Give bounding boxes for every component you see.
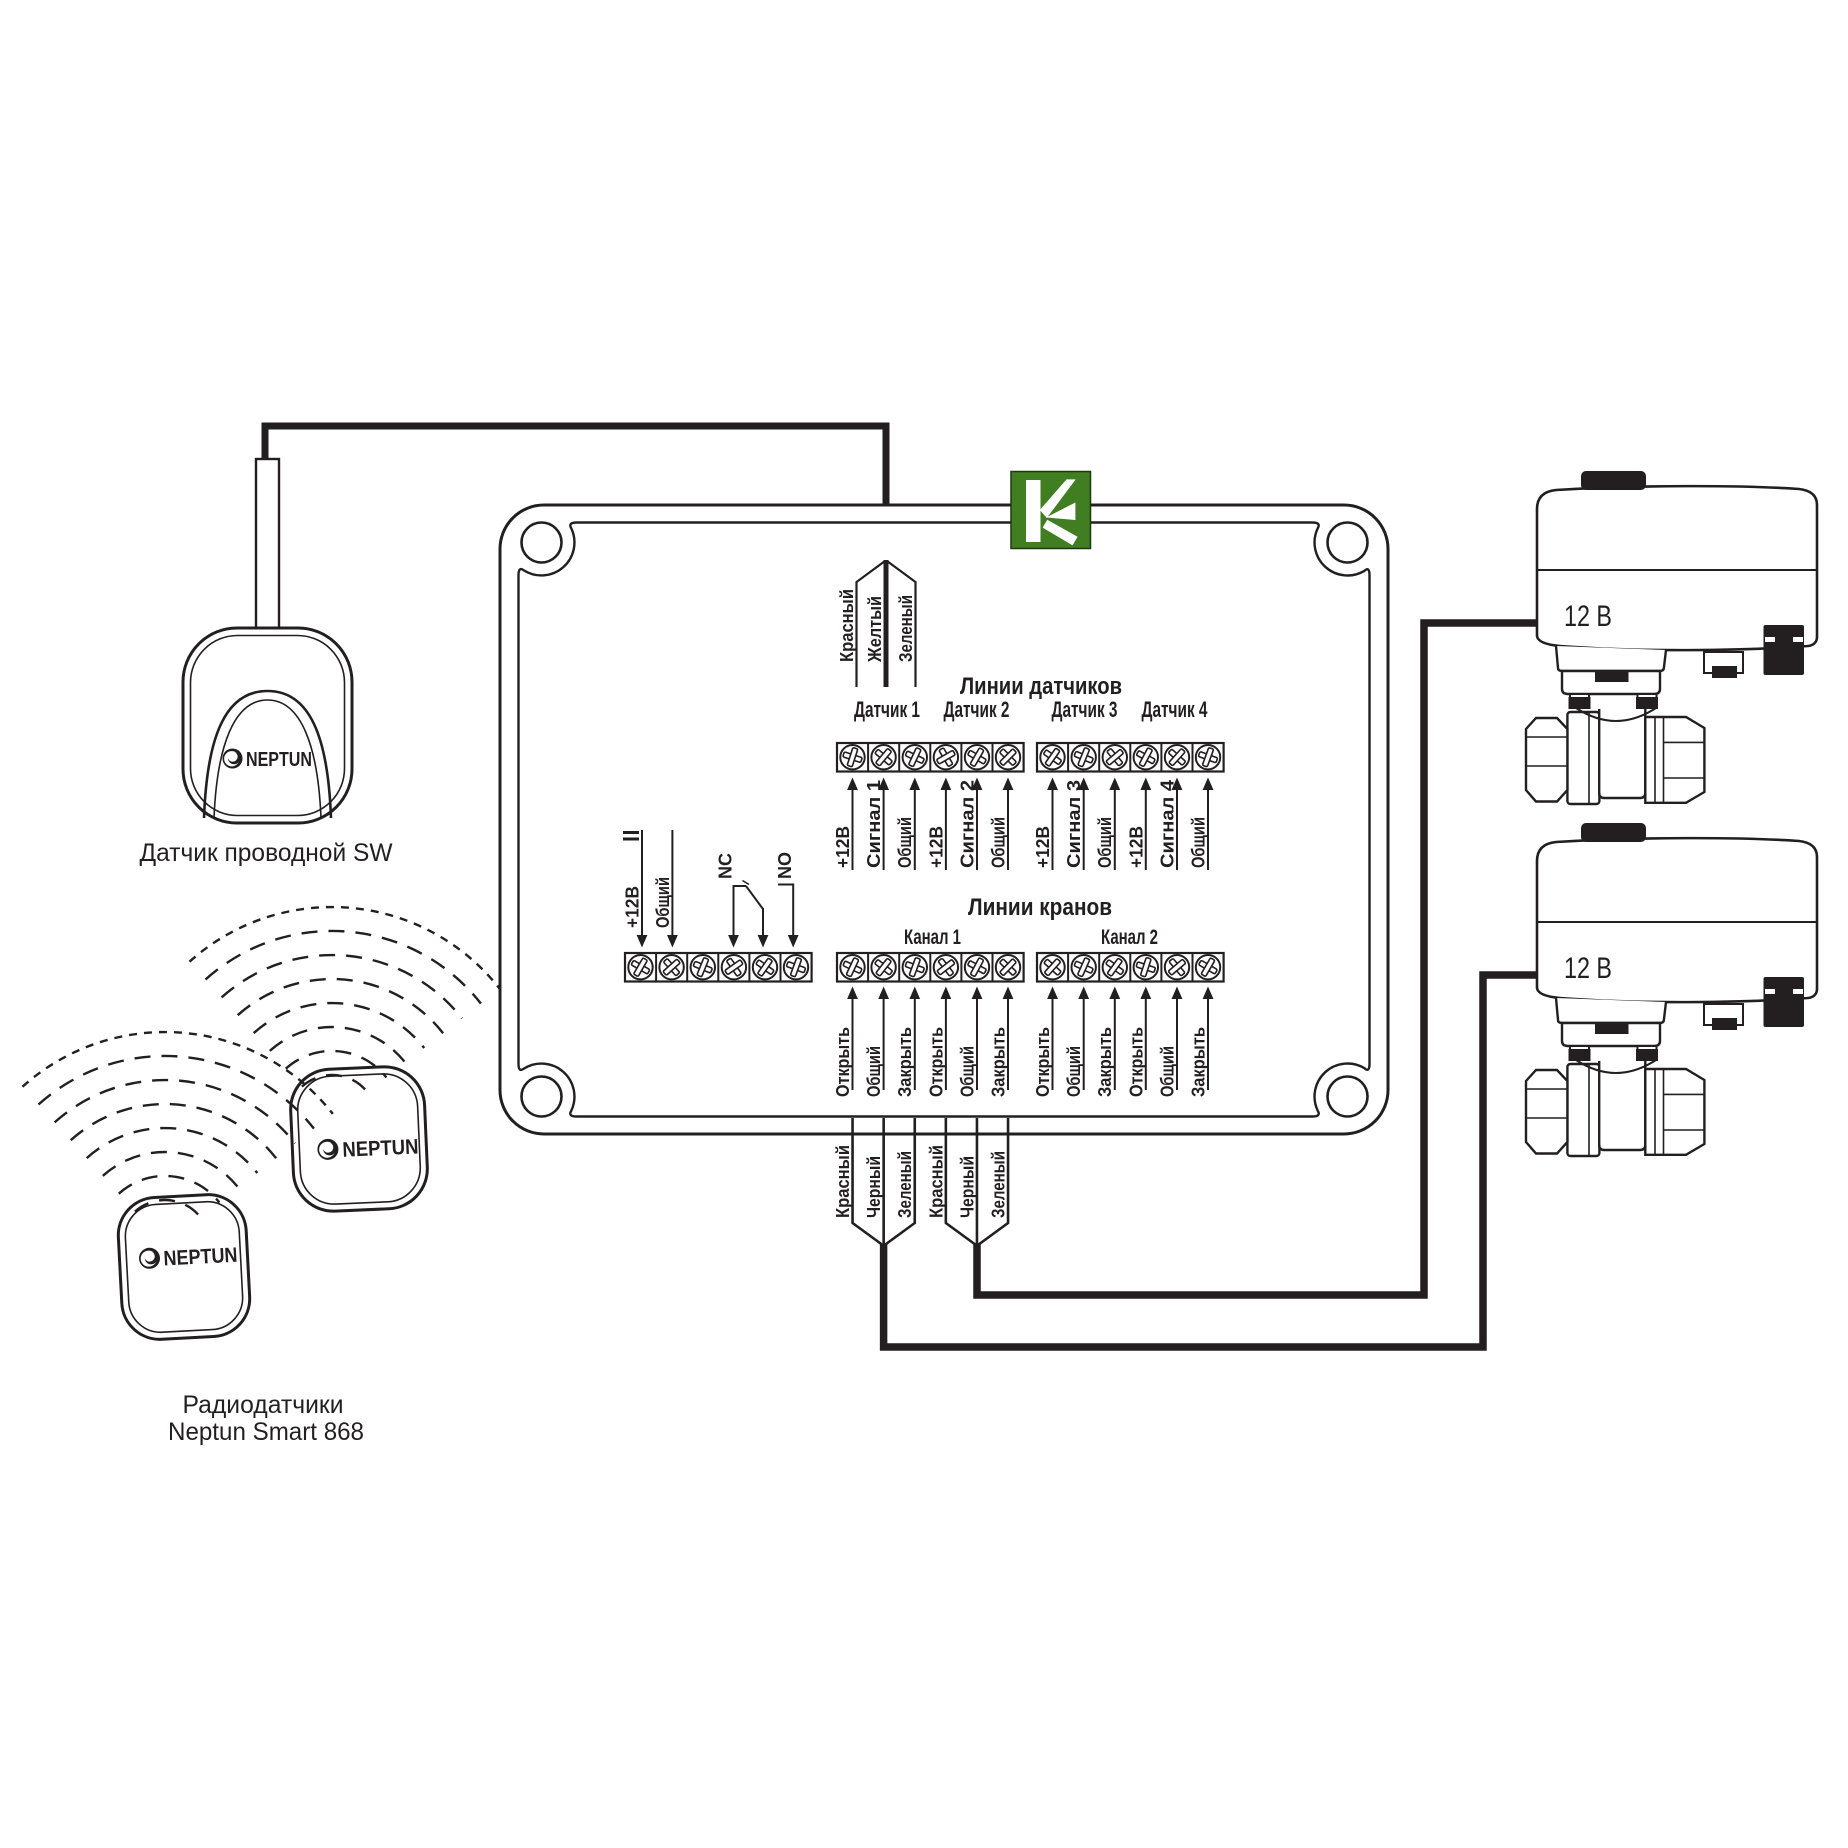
svg-text:Общий: Общий	[864, 1046, 884, 1097]
svg-text:NC: NC	[716, 853, 736, 879]
svg-text:Открыть: Открыть	[1033, 1027, 1053, 1097]
svg-text:Сигнал 4: Сигнал 4	[1158, 780, 1178, 868]
svg-text:Общий: Общий	[653, 877, 673, 928]
svg-text:Желтый: Желтый	[865, 596, 885, 663]
svg-text:Сигнал 2: Сигнал 2	[958, 780, 978, 868]
svg-text:Зеленый: Зеленый	[895, 1151, 915, 1218]
svg-text:Закрыть: Закрыть	[895, 1027, 915, 1097]
svg-text:NEPTUN: NEPTUN	[342, 1135, 419, 1161]
svg-text:Общий: Общий	[1095, 817, 1115, 868]
svg-text:Датчик 3: Датчик 3	[1052, 697, 1118, 722]
svg-text:Канал 2: Канал 2	[1101, 926, 1158, 949]
svg-text:Закрыть: Закрыть	[989, 1027, 1009, 1097]
svg-text:Красный: Красный	[926, 1145, 946, 1218]
svg-text:Общий: Общий	[958, 1046, 978, 1097]
svg-text:Датчик 4: Датчик 4	[1142, 697, 1209, 722]
svg-text:Черный: Черный	[958, 1156, 978, 1218]
svg-text:Общий: Общий	[1189, 817, 1209, 868]
svg-text:Красный: Красный	[833, 1145, 853, 1218]
svg-text:+12В: +12В	[926, 826, 946, 868]
svg-text:Общий: Общий	[1064, 1046, 1084, 1097]
svg-text:Закрыть: Закрыть	[1095, 1027, 1115, 1097]
svg-text:Общий: Общий	[895, 817, 915, 868]
svg-text:Датчик проводной SW: Датчик проводной SW	[140, 839, 393, 867]
svg-text:Neptun Smart 868: Neptun Smart 868	[168, 1418, 364, 1446]
svg-text:+12В: +12В	[1033, 826, 1053, 868]
svg-text:Радиодатчики: Радиодатчики	[183, 1391, 344, 1419]
svg-text:+12В: +12В	[833, 826, 853, 868]
svg-text:+12В: +12В	[623, 886, 643, 928]
svg-text:Сигнал 3: Сигнал 3	[1064, 780, 1084, 868]
svg-text:NO: NO	[775, 852, 795, 879]
svg-text:Датчик 1: Датчик 1	[854, 697, 920, 722]
svg-text:Общий: Общий	[1158, 1046, 1178, 1097]
svg-text:Общий: Общий	[989, 817, 1009, 868]
svg-text:12 В: 12 В	[1564, 600, 1612, 633]
svg-text:Зеленый: Зеленый	[896, 595, 916, 662]
svg-text:NEPTUN: NEPTUN	[163, 1244, 238, 1271]
svg-text:Зеленый: Зеленый	[989, 1151, 1009, 1218]
svg-text:Канал 1: Канал 1	[904, 926, 961, 949]
svg-text:Датчик 2: Датчик 2	[944, 697, 1010, 722]
svg-text:Открыть: Открыть	[926, 1027, 946, 1097]
svg-text:NEPTUN: NEPTUN	[246, 749, 312, 771]
svg-text:Открыть: Открыть	[1126, 1027, 1146, 1097]
svg-text:Закрыть: Закрыть	[1189, 1027, 1209, 1097]
svg-text:Сигнал 1: Сигнал 1	[864, 780, 884, 868]
svg-text:+12В: +12В	[1126, 826, 1146, 868]
svg-text:12 В: 12 В	[1564, 952, 1612, 985]
svg-text:Линии датчиков: Линии датчиков	[960, 673, 1122, 700]
svg-text:Черный: Черный	[864, 1156, 884, 1218]
svg-text:Красный: Красный	[837, 589, 857, 662]
svg-text:Линии кранов: Линии кранов	[968, 894, 1112, 921]
svg-text:Открыть: Открыть	[833, 1027, 853, 1097]
